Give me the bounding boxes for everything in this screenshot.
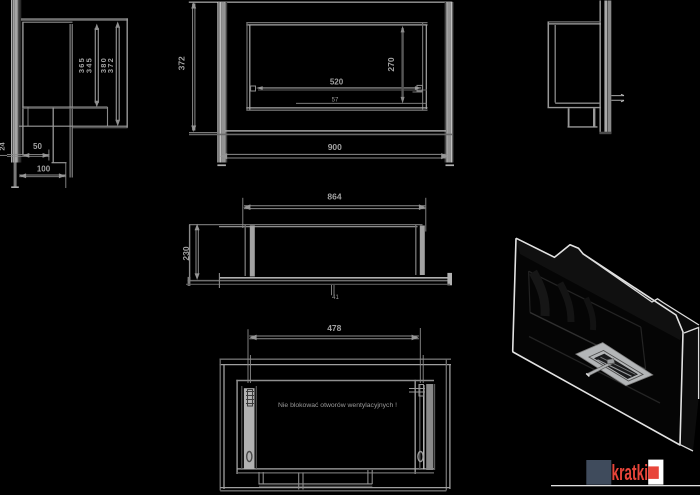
svg-text:372: 372: [176, 56, 186, 70]
svg-text:864: 864: [327, 192, 341, 202]
svg-text:24: 24: [0, 142, 7, 151]
svg-text:345: 345: [85, 57, 94, 73]
svg-text:50: 50: [33, 142, 42, 151]
svg-text:478: 478: [327, 323, 341, 333]
svg-text:57: 57: [332, 98, 339, 104]
svg-text:100: 100: [37, 165, 51, 174]
svg-text:230: 230: [181, 246, 191, 260]
svg-text:41: 41: [332, 295, 339, 301]
svg-text:900: 900: [328, 142, 342, 152]
svg-text:Nie blokować otworów wentylacy: Nie blokować otworów wentylacyjnych !: [278, 402, 397, 409]
svg-text:kratki: kratki: [612, 460, 649, 485]
svg-text:270: 270: [386, 57, 396, 71]
svg-text:520: 520: [330, 78, 344, 87]
svg-text:372: 372: [106, 57, 115, 73]
